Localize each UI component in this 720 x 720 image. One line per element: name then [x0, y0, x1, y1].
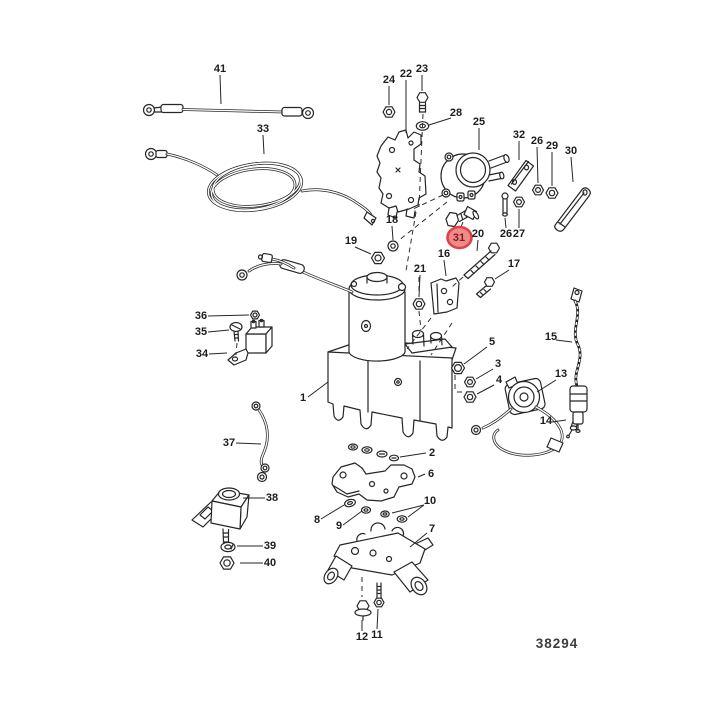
part-label-14: 14 — [540, 415, 553, 427]
part-17-bolt — [477, 278, 495, 298]
part-label-7: 7 — [429, 523, 435, 535]
part-21-nut — [413, 299, 425, 309]
part-label-34: 34 — [196, 348, 209, 360]
part-4-nut — [464, 392, 476, 402]
exploded-parts-diagram: 4133242223282532262930181931202627162117… — [0, 0, 720, 720]
part-label-30: 30 — [565, 145, 577, 157]
part-label-23: 23 — [416, 63, 428, 75]
part-32-plate — [508, 161, 534, 192]
part-9-seal — [362, 507, 371, 513]
part-15-wire — [570, 288, 587, 432]
part-35-screw — [230, 323, 242, 342]
part-19-nut — [372, 252, 385, 263]
part-label-33: 33 — [257, 123, 269, 135]
part-label-38: 38 — [266, 492, 278, 504]
part-6-plate — [332, 463, 415, 501]
part-label-29: 29 — [546, 140, 558, 152]
part-37-wire — [252, 402, 269, 482]
part-5-bolt — [452, 362, 465, 373]
part-label-19: 19 — [345, 235, 357, 247]
part-label-40: 40 — [264, 557, 276, 569]
part-38-bracket — [192, 488, 249, 546]
part-label-37: 37 — [223, 437, 235, 449]
part-label-25: 25 — [473, 116, 485, 128]
part-label-6: 6 — [428, 468, 434, 480]
part-label-31: 31 — [453, 232, 465, 244]
part-label-36: 36 — [195, 310, 207, 322]
part-label-11: 11 — [371, 629, 383, 641]
part-label-8: 8 — [314, 514, 320, 526]
part-16-plate — [431, 278, 459, 314]
part-24-nut — [383, 107, 395, 117]
part-label-15: 15 — [545, 331, 557, 343]
part-label-13: 13 — [555, 368, 567, 380]
part-23-bolt — [417, 93, 428, 112]
part-26-nut-upper — [533, 185, 544, 195]
part-label-9: 9 — [336, 520, 342, 532]
part-label-24: 24 — [383, 74, 396, 86]
part-label-32: 32 — [513, 129, 525, 141]
part-12-bolt — [355, 601, 371, 620]
part-label-35: 35 — [195, 326, 207, 338]
part-41-link-rod — [144, 105, 314, 119]
part-2-gaskets — [349, 444, 399, 461]
part-20-bolt — [464, 243, 500, 278]
part-40-nut — [220, 557, 234, 569]
part-30-strap — [555, 188, 591, 231]
drawing-number: 38294 — [536, 636, 579, 651]
part-label-27: 27 — [513, 228, 525, 240]
part-label-28: 28 — [450, 107, 462, 119]
part-25-solenoid — [441, 153, 510, 201]
part-11-stud — [374, 583, 384, 607]
part-label-2: 2 — [429, 447, 435, 459]
part-label-1: 1 — [300, 392, 306, 404]
part-label-17: 17 — [508, 258, 520, 270]
part-label-18: 18 — [386, 214, 398, 226]
part-18-washer — [388, 241, 398, 251]
part-label-16: 16 — [438, 248, 450, 260]
part-label-21: 21 — [414, 263, 426, 275]
part-3-nut — [465, 377, 476, 387]
part-label-4: 4 — [496, 374, 503, 386]
part-36-nut — [251, 311, 260, 319]
part-8-seal — [344, 498, 356, 508]
part-label-22: 22 — [400, 68, 412, 80]
part-33-ground-cable — [146, 149, 377, 226]
part-label-5: 5 — [489, 336, 495, 348]
part-39-washer — [221, 542, 235, 551]
part-label-39: 39 — [264, 540, 276, 552]
part-label-20: 20 — [472, 228, 484, 240]
part-label-26a: 26 — [531, 135, 543, 147]
part-label-41: 41 — [214, 63, 226, 75]
part-27-nut — [514, 197, 525, 207]
part-label-26b: 26 — [500, 228, 512, 240]
part-label-10: 10 — [424, 495, 436, 507]
part-label-3: 3 — [495, 358, 501, 370]
part-26-pin-lower — [502, 193, 508, 216]
part-29-nut — [546, 188, 558, 198]
part-label-12: 12 — [356, 631, 368, 643]
